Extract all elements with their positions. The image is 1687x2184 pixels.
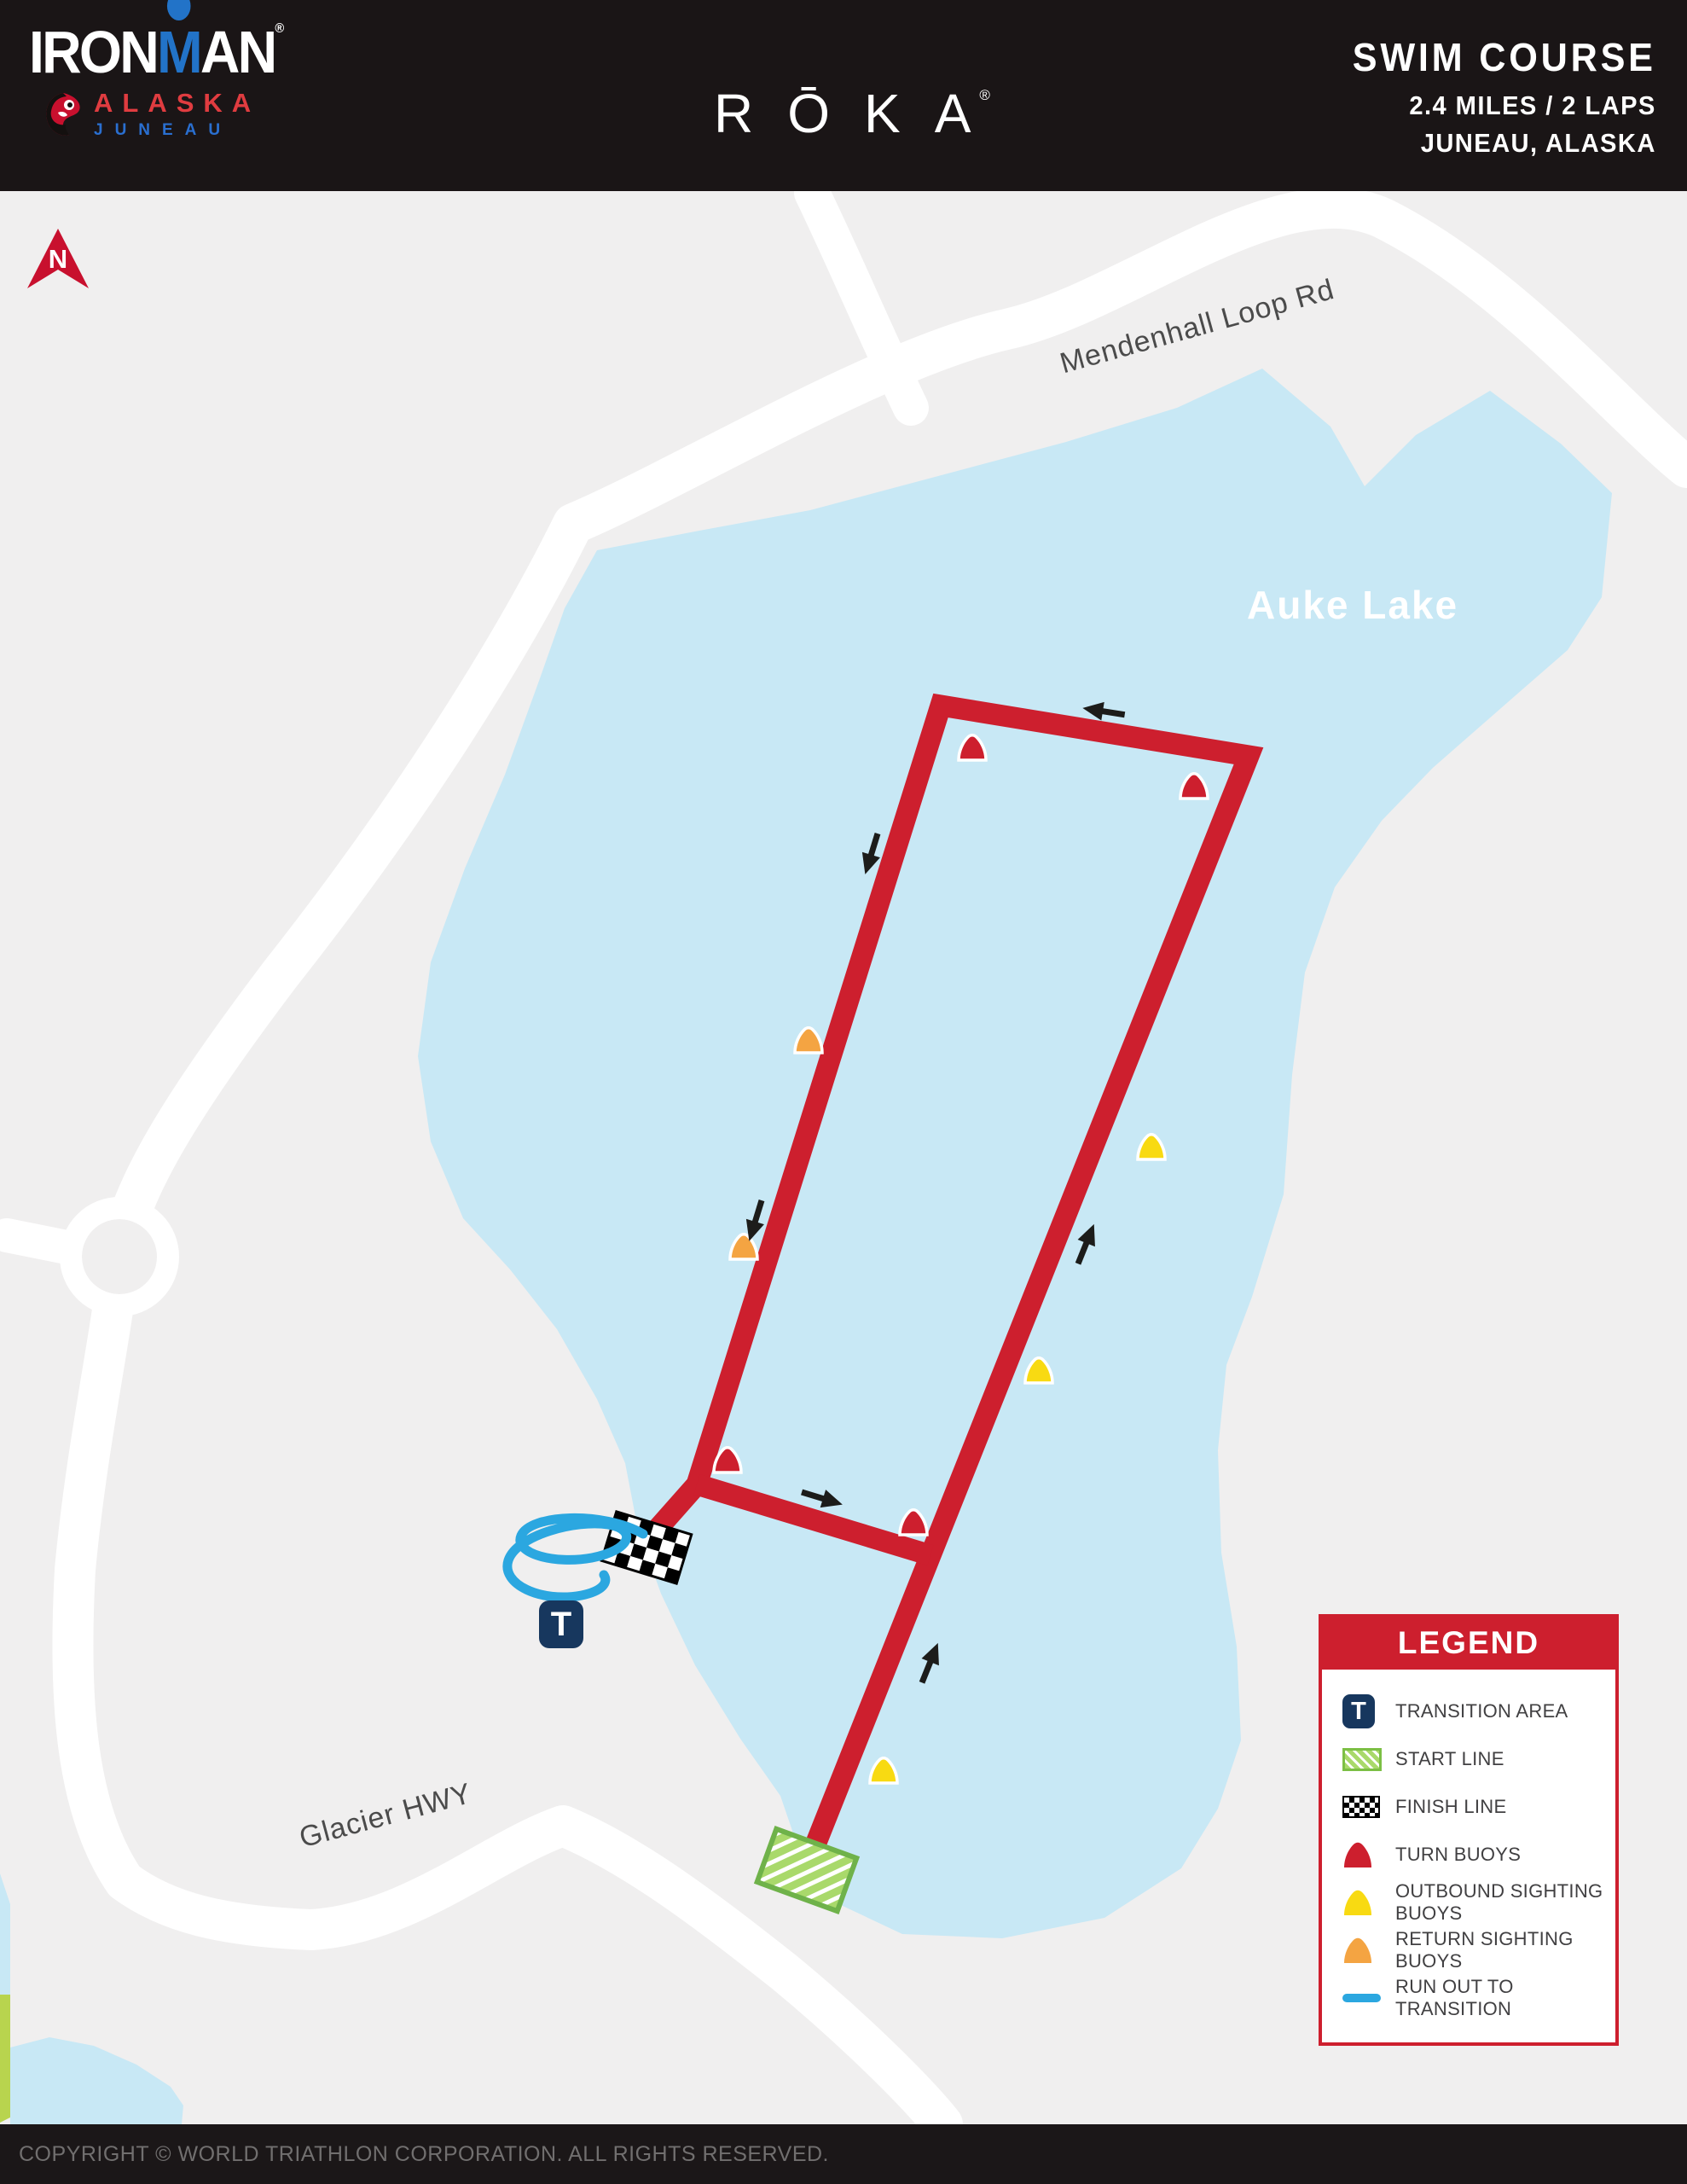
legend-item-start-line: START LINE bbox=[1342, 1737, 1605, 1781]
legend-item-run-out: RUN OUT TO TRANSITION bbox=[1342, 1976, 1605, 2020]
ironman-wordmark: IRONMAN® bbox=[29, 22, 288, 82]
roundabout-island bbox=[82, 1219, 157, 1294]
legend-item-finish-line: FINISH LINE bbox=[1342, 1785, 1605, 1829]
return-sighting-buoy-icon bbox=[1342, 1937, 1373, 1964]
legend-title: LEGEND bbox=[1398, 1625, 1539, 1661]
legend-item-return-buoys: RETURN SIGHTING BUOYS bbox=[1342, 1928, 1605, 1972]
legend-label: START LINE bbox=[1395, 1748, 1504, 1770]
course-title-block: SWIM COURSE 2.4 MILES / 2 LAPS JUNEAU, A… bbox=[1353, 34, 1656, 159]
m-dot-icon: M bbox=[157, 22, 200, 82]
transition-area-icon: T bbox=[1342, 1694, 1375, 1728]
legend-body: T TRANSITION AREA START LINE FINISH LINE… bbox=[1322, 1669, 1615, 2042]
roka-sponsor-logo: RŌKA® bbox=[697, 82, 990, 145]
run-out-icon bbox=[1342, 1994, 1381, 2002]
legend-label: RETURN SIGHTING BUOYS bbox=[1395, 1928, 1605, 1972]
legend-item-outbound-buoys: OUTBOUND SIGHTING BUOYS bbox=[1342, 1880, 1605, 1925]
legend-label: TURN BUOYS bbox=[1395, 1844, 1521, 1866]
swim-course-map-page: N Auke Lake Mendenhall Loop Rd Glacier H… bbox=[0, 0, 1687, 2184]
legend-item-transition: T TRANSITION AREA bbox=[1342, 1689, 1605, 1734]
city-label: JUNEAU bbox=[94, 121, 260, 140]
outbound-sighting-buoy-icon bbox=[1342, 1889, 1373, 1916]
start-line-icon bbox=[1342, 1748, 1382, 1771]
finish-line-icon bbox=[1342, 1796, 1380, 1818]
transition-area-marker: T bbox=[539, 1600, 583, 1648]
shore-edge-stripe bbox=[0, 1995, 10, 2123]
roka-wordmark: RŌKA bbox=[714, 83, 1005, 144]
roka-registered-mark: ® bbox=[979, 87, 990, 103]
ironman-word-right: AN bbox=[200, 19, 275, 85]
turn-buoy-icon bbox=[1342, 1841, 1373, 1868]
lake-name-label: Auke Lake bbox=[1247, 582, 1458, 628]
legend-header: LEGEND bbox=[1321, 1617, 1616, 1670]
copyright-text: COPYRIGHT © WORLD TRIATHLON CORPORATION.… bbox=[19, 2142, 829, 2167]
legend-label: FINISH LINE bbox=[1395, 1796, 1506, 1818]
m-dot-head-icon bbox=[167, 0, 191, 20]
legend-label: TRANSITION AREA bbox=[1395, 1700, 1568, 1722]
legend-item-turn-buoys: TURN BUOYS bbox=[1342, 1833, 1605, 1877]
ironman-alaska-logo: IRONMAN® ALASKA JUNEAU bbox=[29, 22, 310, 140]
course-distance: 2.4 MILES / 2 LAPS bbox=[1353, 90, 1656, 121]
footer-bar: COPYRIGHT © WORLD TRIATHLON CORPORATION.… bbox=[0, 2124, 1687, 2184]
legend-label: OUTBOUND SIGHTING BUOYS bbox=[1395, 1880, 1605, 1925]
header-bar: IRONMAN® ALASKA JUNEAU RŌKA® SWIM COURSE bbox=[0, 0, 1687, 191]
north-label: N bbox=[38, 244, 78, 275]
course-title: SWIM COURSE bbox=[1353, 34, 1656, 80]
region-label: ALASKA bbox=[94, 89, 260, 118]
legend-panel: LEGEND T TRANSITION AREA START LINE FINI… bbox=[1319, 1614, 1619, 2046]
legend-label: RUN OUT TO TRANSITION bbox=[1395, 1976, 1605, 2020]
course-location: JUNEAU, ALASKA bbox=[1353, 128, 1656, 159]
tribal-salmon-icon bbox=[41, 90, 85, 138]
ironman-word-left: IRON bbox=[29, 19, 157, 85]
registered-mark: ® bbox=[275, 21, 284, 36]
